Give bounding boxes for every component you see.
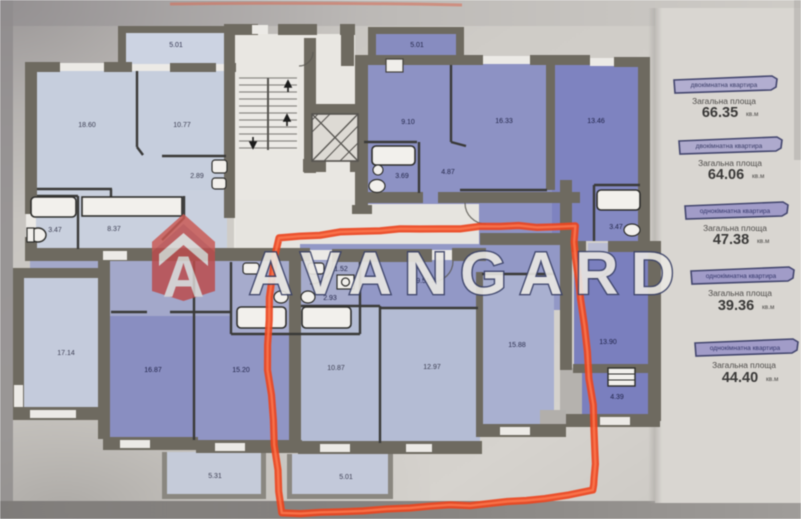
svg-text:4.87: 4.87 [441,169,455,176]
svg-text:Загальна площа: Загальна площа [712,360,776,370]
svg-text:18.60: 18.60 [78,122,96,129]
svg-text:AVANGARD: AVANGARD [249,240,687,307]
svg-text:A: A [163,245,205,310]
svg-text:16.33: 16.33 [495,118,513,125]
svg-text:5.01: 5.01 [169,42,183,49]
svg-text:39.36: 39.36 [718,298,754,314]
svg-text:3.69: 3.69 [395,173,409,180]
svg-text:9.10: 9.10 [401,119,415,126]
svg-text:5.31: 5.31 [208,473,222,480]
svg-text:10.77: 10.77 [173,122,191,129]
svg-text:12.97: 12.97 [423,364,441,371]
svg-text:8.37: 8.37 [107,226,121,233]
svg-text:кв.м: кв.м [752,173,764,180]
svg-text:однокімнатна квартира: однокімнатна квартира [706,272,777,280]
svg-text:3.47: 3.47 [609,224,623,231]
svg-text:44.40: 44.40 [722,370,758,386]
svg-text:двокімнатна квартира: двокімнатна квартира [691,81,758,89]
svg-text:2.89: 2.89 [190,173,204,180]
svg-text:однокімнатна квартира: однокімнатна квартира [710,344,781,352]
svg-text:5.01: 5.01 [410,42,424,49]
svg-text:кв.м: кв.м [746,111,758,118]
svg-text:47.38: 47.38 [713,232,749,248]
svg-text:кв.м: кв.м [762,304,774,311]
svg-text:66.35: 66.35 [702,105,738,121]
svg-text:однокімнатна квартира: однокімнатна квартира [700,207,771,215]
svg-text:10.87: 10.87 [327,365,345,372]
svg-text:кв.м: кв.м [766,376,778,383]
svg-text:17.14: 17.14 [57,350,75,357]
svg-text:Загальна площа: Загальна площа [708,288,772,298]
svg-text:15.20: 15.20 [232,367,250,374]
svg-text:3.47: 3.47 [48,227,62,234]
svg-text:двокімнатна квартира: двокімнатна квартира [696,142,763,150]
svg-text:64.06: 64.06 [708,167,744,183]
svg-text:16.87: 16.87 [144,367,162,374]
svg-text:кв.м: кв.м [757,238,769,245]
svg-text:15.88: 15.88 [508,342,526,349]
svg-text:4.39: 4.39 [610,394,624,401]
svg-text:13.90: 13.90 [599,339,617,346]
svg-text:13.46: 13.46 [587,118,605,125]
svg-text:5.01: 5.01 [339,474,353,481]
